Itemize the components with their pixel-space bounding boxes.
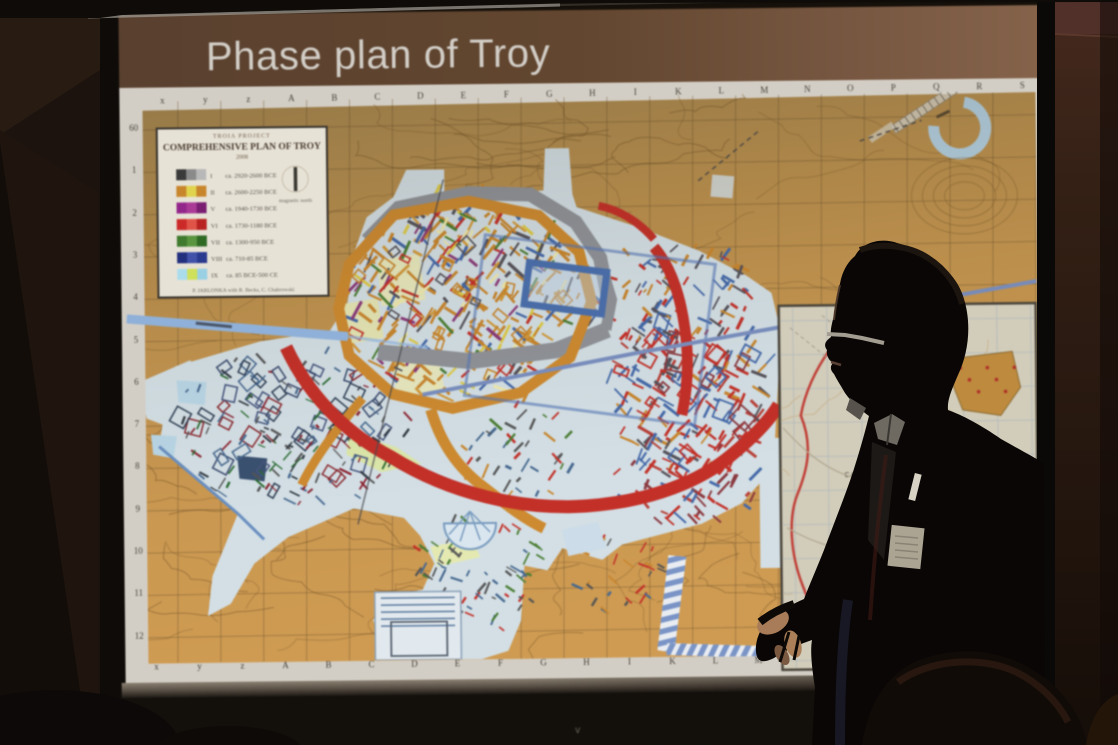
svg-text:E: E bbox=[455, 658, 461, 668]
svg-text:I: I bbox=[628, 656, 631, 666]
svg-text:y: y bbox=[197, 661, 202, 671]
svg-text:ca. 2600-2250 BCE: ca. 2600-2250 BCE bbox=[225, 189, 277, 197]
svg-text:Q: Q bbox=[933, 82, 940, 92]
svg-text:IX: IX bbox=[211, 273, 218, 280]
svg-text:N: N bbox=[804, 84, 811, 94]
svg-text:C: C bbox=[374, 92, 380, 102]
svg-text:II: II bbox=[210, 190, 214, 197]
svg-text:B: B bbox=[325, 660, 331, 670]
svg-text:VII: VII bbox=[211, 239, 220, 246]
svg-text:12: 12 bbox=[135, 631, 144, 641]
svg-text:F: F bbox=[498, 658, 503, 668]
svg-text:magnetic north: magnetic north bbox=[279, 198, 312, 204]
svg-text:9: 9 bbox=[135, 504, 140, 514]
svg-text:ca. 1940-1730 BCE: ca. 1940-1730 BCE bbox=[226, 205, 278, 213]
svg-text:ca. 1730-1180 BCE: ca. 1730-1180 BCE bbox=[226, 222, 277, 230]
svg-text:VI: VI bbox=[211, 223, 218, 230]
svg-text:R: R bbox=[976, 81, 982, 91]
svg-text:z: z bbox=[240, 661, 244, 671]
svg-text:v: v bbox=[575, 725, 580, 736]
svg-text:60: 60 bbox=[129, 123, 139, 133]
svg-text:I: I bbox=[210, 173, 212, 180]
svg-text:P. JABLONKA with R. Becks, C.: P. JABLONKA with R. Becks, C. Chabrowski bbox=[192, 287, 295, 294]
svg-text:O: O bbox=[847, 83, 854, 93]
svg-text:TROIA PROJECT: TROIA PROJECT bbox=[213, 133, 271, 140]
svg-text:4: 4 bbox=[133, 292, 138, 302]
svg-text:H: H bbox=[589, 88, 596, 98]
svg-text:x: x bbox=[160, 95, 165, 105]
svg-text:F: F bbox=[504, 89, 509, 99]
svg-text:L: L bbox=[719, 86, 725, 96]
svg-text:A: A bbox=[288, 93, 295, 103]
svg-text:y: y bbox=[203, 95, 208, 105]
svg-text:G: G bbox=[540, 657, 547, 667]
svg-text:10: 10 bbox=[134, 546, 144, 556]
svg-text:ca. 85 BCE-500 CE: ca. 85 BCE-500 CE bbox=[226, 272, 278, 280]
svg-text:ca. 710-85 BCE: ca. 710-85 BCE bbox=[226, 255, 268, 262]
svg-text:H: H bbox=[583, 657, 590, 667]
svg-text:VIII: VIII bbox=[211, 256, 222, 263]
svg-text:G: G bbox=[546, 89, 553, 99]
svg-text:A: A bbox=[282, 660, 289, 670]
svg-text:z: z bbox=[246, 94, 250, 104]
svg-text:3: 3 bbox=[133, 250, 138, 260]
svg-text:5: 5 bbox=[134, 335, 139, 345]
svg-text:x: x bbox=[154, 662, 159, 672]
svg-text:V: V bbox=[211, 206, 216, 213]
svg-text:L: L bbox=[713, 656, 719, 666]
svg-text:D: D bbox=[411, 659, 418, 669]
svg-text:C: C bbox=[368, 659, 374, 669]
svg-text:K: K bbox=[675, 86, 682, 96]
svg-text:ca. 2920-2600 BCE: ca. 2920-2600 BCE bbox=[225, 172, 277, 180]
svg-text:M: M bbox=[760, 85, 768, 95]
svg-text:ca. 1300-950 BCE: ca. 1300-950 BCE bbox=[226, 239, 274, 247]
svg-text:11: 11 bbox=[134, 588, 143, 598]
svg-text:2008: 2008 bbox=[236, 155, 248, 161]
svg-text:D: D bbox=[417, 91, 424, 101]
svg-text:S: S bbox=[1020, 80, 1025, 90]
svg-text:E: E bbox=[461, 90, 467, 100]
svg-text:B: B bbox=[331, 92, 337, 102]
svg-text:COMPREHENSIVE PLAN OF TROY: COMPREHENSIVE PLAN OF TROY bbox=[163, 142, 321, 154]
svg-text:I: I bbox=[634, 87, 637, 97]
svg-text:7: 7 bbox=[135, 419, 140, 429]
svg-text:Phase plan of Troy: Phase plan of Troy bbox=[206, 31, 551, 79]
svg-text:8: 8 bbox=[135, 461, 140, 471]
svg-text:P: P bbox=[891, 82, 896, 92]
svg-text:2: 2 bbox=[132, 208, 137, 218]
svg-text:6: 6 bbox=[134, 377, 139, 387]
svg-text:K: K bbox=[669, 656, 676, 666]
svg-text:1: 1 bbox=[132, 165, 137, 175]
